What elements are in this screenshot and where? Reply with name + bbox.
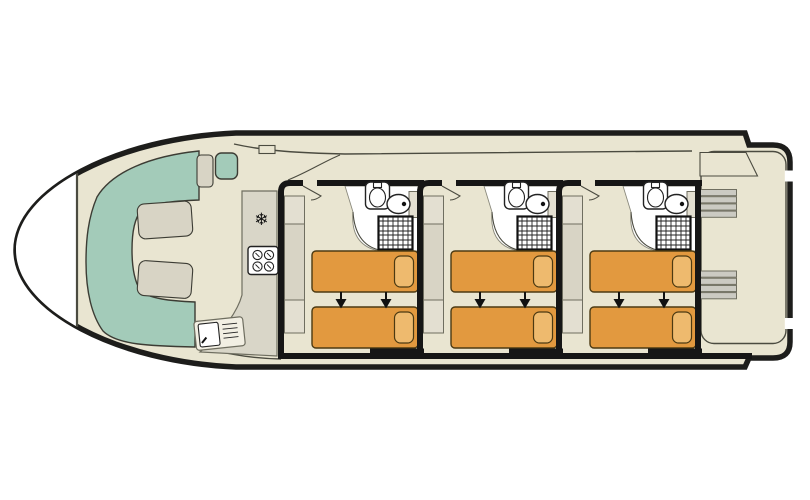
- side-gate: [785, 318, 797, 329]
- stern-stairs-bottom: [701, 271, 737, 299]
- bench-cushion: [137, 260, 193, 299]
- cabin-1: [281, 182, 424, 359]
- floor-plan-canvas: ❄: [0, 0, 810, 500]
- galley-sink-icon: [194, 317, 246, 351]
- fridge-icon: ❄: [254, 210, 268, 230]
- stern-stairs-top: [701, 190, 737, 218]
- cabin-3: [559, 182, 702, 359]
- side-seat: [197, 155, 213, 187]
- helm-seat: [216, 153, 238, 179]
- hob-icon: [248, 247, 278, 275]
- bow-deck: [8, 126, 77, 374]
- bench-cushion: [137, 201, 193, 240]
- side-gate: [785, 171, 797, 182]
- boat-floor-plan: ❄: [0, 0, 810, 500]
- walkway-step: [259, 146, 275, 154]
- cabin-2: [420, 182, 563, 359]
